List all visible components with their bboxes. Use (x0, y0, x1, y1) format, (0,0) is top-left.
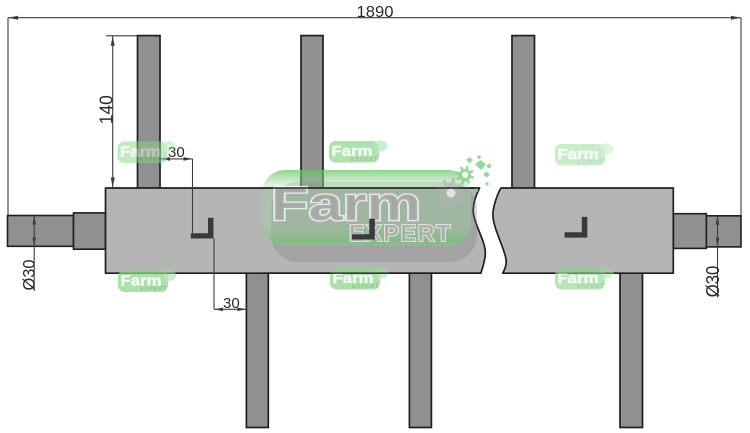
svg-text:Ø30: Ø30 (19, 260, 38, 291)
svg-text:1890: 1890 (357, 4, 394, 21)
svg-text:Ø30: Ø30 (702, 266, 723, 298)
svg-text:140: 140 (95, 95, 116, 124)
svg-text:EXPERT: EXPERT (349, 220, 452, 246)
svg-text:30: 30 (223, 295, 240, 312)
